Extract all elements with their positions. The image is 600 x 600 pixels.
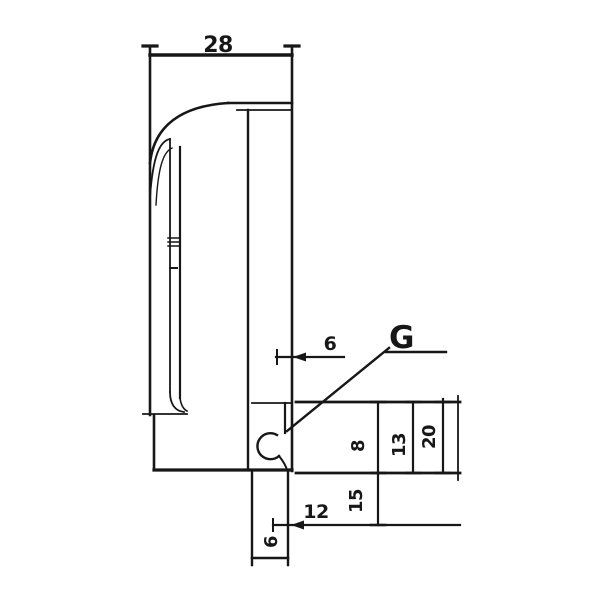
depth-inner-value: 8 [348,440,369,452]
reference-letter: G [389,320,414,356]
panel-bottom-curve [170,392,184,412]
lower-height-value: 15 [346,489,367,513]
dimension-arrow [293,353,306,362]
bottom-offset-value: 12 [303,501,328,523]
panel-bottom-curve-2 [180,398,187,411]
foot-outline [252,471,288,565]
body-corner-curve [150,103,228,163]
depth-outer-value: 20 [419,425,440,449]
drawing-canvas: 28 6 G 12 15 8 13 20 6 [0,0,600,600]
foot-width-value: 6 [261,536,282,548]
technical-drawing: 28 6 G 12 15 8 13 20 6 [0,0,600,600]
rolled-edge-detail [257,403,287,470]
body-outline [150,46,292,471]
roll-circle [257,433,279,459]
depth-mid-value: 13 [389,433,410,457]
edge-offset-value: 6 [324,333,337,355]
leader-line [287,348,389,431]
top-width-value: 28 [203,33,233,58]
dimension-arrow [291,521,304,530]
roll-tail [279,456,287,470]
reference-leader [287,348,446,431]
